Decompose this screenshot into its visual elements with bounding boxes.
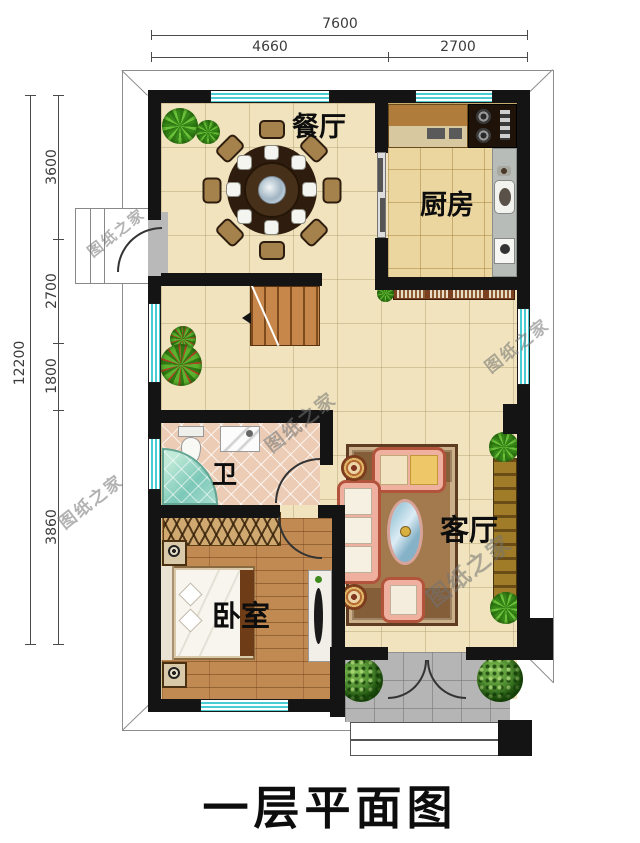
nightstand-lamp: [168, 667, 180, 679]
corner-column: [517, 618, 553, 660]
eave-corner: [122, 705, 149, 731]
dim-total-width: 7600: [300, 17, 380, 31]
dim-seg: 4660: [225, 40, 315, 54]
shower-head-icon: [246, 430, 253, 437]
room-label-bathroom: 卫: [212, 462, 237, 487]
window-kitchen: [415, 90, 493, 103]
porch-step: [350, 740, 512, 756]
dim-tick: [527, 52, 528, 62]
sideboard-items: [489, 289, 511, 298]
kitchen-sink-basin: [449, 128, 462, 139]
stairs-arrow: [242, 312, 251, 324]
eave-line-top: [122, 70, 553, 71]
wall-kitchen-bottom: [388, 277, 530, 290]
plate: [264, 220, 279, 235]
eave-corner: [121, 70, 148, 96]
dresser-tv: [314, 588, 323, 644]
window-bathroom: [148, 438, 161, 490]
dim-total-height: 12200: [13, 328, 27, 398]
watermark: 图纸之家: [52, 467, 127, 533]
dining-chair: [259, 120, 285, 139]
dresser-deco: [315, 576, 322, 583]
dim-tick: [53, 95, 64, 96]
plate: [302, 182, 317, 197]
stove-burner: [476, 109, 491, 124]
dining-chair: [323, 178, 342, 204]
eave-corner: [527, 656, 554, 683]
armchair-cushion: [390, 585, 417, 615]
dining-chair: [259, 241, 285, 260]
dim-tick: [388, 52, 389, 62]
plate: [291, 209, 306, 224]
nightstand-lamp: [168, 545, 180, 557]
wall-living-bottom-left: [345, 647, 388, 660]
window-hall-left: [148, 303, 161, 383]
room-label-dining: 餐厅: [292, 114, 346, 141]
window-dining: [210, 90, 330, 103]
plate: [237, 155, 252, 170]
sofa-cushion: [344, 546, 372, 573]
wall-kitchen-divider-top: [375, 103, 388, 153]
sideboard-items: [430, 289, 448, 298]
bush: [339, 658, 383, 702]
page-title: 一层平面图: [120, 772, 540, 838]
kitchen-sink-basin: [427, 128, 445, 139]
dining-chair: [203, 178, 222, 204]
sofa-cushion: [344, 488, 372, 515]
dim-seg: 1800: [45, 341, 59, 411]
bed-headboard: [161, 566, 174, 660]
kitchen-faucet: [497, 166, 511, 176]
kitchen-appliance-dial: [500, 244, 510, 254]
stove-controls: [500, 110, 510, 140]
shower-tray: [220, 426, 260, 452]
plant: [196, 120, 220, 144]
dining-centerpiece: [258, 176, 286, 204]
dim-tick: [25, 644, 36, 645]
dim-tick: [151, 30, 152, 40]
wall-bedroom-top-stub: [318, 505, 345, 518]
plate: [237, 209, 252, 224]
stove-burner: [476, 128, 491, 143]
dim-seg: 3600: [45, 132, 59, 202]
wall-kitchen-divider-bottom: [375, 238, 388, 290]
sofa-cushion: [380, 455, 408, 485]
sideboard-items: [453, 289, 483, 298]
dim-seg: 3860: [45, 492, 59, 562]
plate: [291, 155, 306, 170]
dim-tick: [53, 644, 64, 645]
eave-line-right: [553, 70, 554, 683]
toilet-tank: [178, 426, 204, 437]
wall-living-pier: [503, 404, 530, 434]
plate: [264, 145, 279, 160]
dim-tick: [25, 95, 36, 96]
sofa-cushion: [344, 517, 372, 544]
floor-plan-canvas: 7600 4660 2700 12200 3600 2700 1800 3860: [0, 0, 640, 843]
window-bedroom: [200, 699, 289, 712]
eave-line-bottom: [122, 730, 355, 731]
sideboard-items: [397, 289, 425, 298]
sliding-door-panel: [380, 198, 385, 232]
porch-step: [350, 722, 512, 740]
dim-tick: [527, 30, 528, 40]
dim-tick: [151, 52, 152, 62]
dim-line: [152, 35, 528, 36]
stairs: [250, 286, 320, 346]
sofa-cushion: [410, 455, 438, 485]
dim-seg: 2700: [45, 256, 59, 326]
plate: [226, 182, 241, 197]
eave-corner: [528, 69, 553, 93]
coffee-table-center: [400, 526, 411, 537]
wall-dining-bottom: [155, 273, 322, 286]
porch-pillar-right: [498, 720, 532, 756]
plant: [160, 344, 202, 386]
dim-seg: 2700: [415, 40, 501, 54]
eave-line-left: [122, 70, 123, 730]
wall-left: [148, 90, 161, 712]
bush: [477, 656, 523, 702]
plant: [162, 108, 198, 144]
wall-bedroom-top: [148, 505, 280, 518]
kitchen-sink-bowl: [499, 188, 511, 206]
dim-line: [30, 95, 31, 645]
dim-line: [152, 57, 528, 58]
porch-pillar-left: [330, 647, 345, 717]
side-table: [341, 455, 367, 481]
wall-living-bottom-right: [466, 647, 517, 660]
sliding-door-panel: [378, 158, 383, 192]
room-label-kitchen: 厨房: [420, 192, 474, 219]
dim-tick: [53, 239, 64, 240]
plant: [489, 432, 519, 462]
room-label-bedroom: 卧室: [212, 602, 270, 631]
